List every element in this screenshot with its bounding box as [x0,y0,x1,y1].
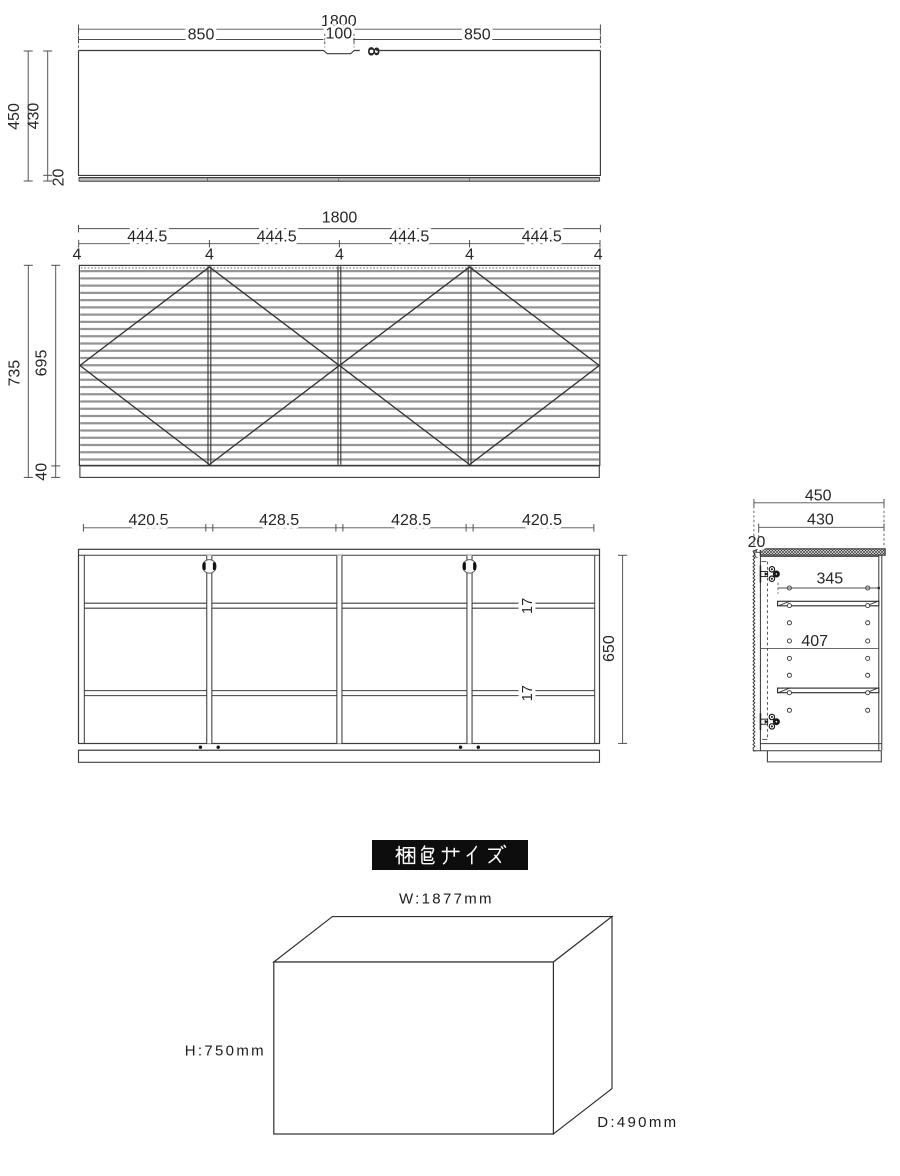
svg-text:430: 430 [26,103,43,130]
svg-text:428.5: 428.5 [259,512,299,529]
svg-text:4: 4 [594,247,603,264]
svg-text:428.5: 428.5 [391,512,431,529]
svg-text:850: 850 [464,26,491,43]
svg-text:H:750mm: H:750mm [185,1042,266,1059]
svg-text:444.5: 444.5 [389,229,429,246]
svg-text:444.5: 444.5 [522,229,562,246]
svg-text:40: 40 [33,463,50,481]
svg-text:695: 695 [33,350,50,377]
svg-text:407: 407 [801,633,828,650]
svg-text:420.5: 420.5 [128,512,168,529]
svg-text:20: 20 [748,534,766,551]
svg-text:20: 20 [51,169,68,187]
svg-text:17: 17 [520,685,536,701]
svg-text:450: 450 [805,487,832,504]
svg-text:4: 4 [73,247,82,264]
svg-text:4: 4 [465,247,474,264]
svg-text:W:1877mm: W:1877mm [399,891,494,908]
svg-text:650: 650 [601,635,618,662]
svg-text:430: 430 [807,512,834,529]
svg-text:1800: 1800 [322,209,358,226]
svg-text:D:490mm: D:490mm [597,1114,678,1131]
svg-text:420.5: 420.5 [522,512,562,529]
svg-text:8: 8 [364,47,383,56]
svg-text:4: 4 [335,247,344,264]
svg-text:444.5: 444.5 [127,229,167,246]
svg-text:450: 450 [6,103,23,130]
svg-text:735: 735 [6,360,23,387]
svg-text:850: 850 [188,26,215,43]
svg-text:345: 345 [816,571,843,588]
svg-text:4: 4 [205,247,214,264]
svg-text:17: 17 [520,598,536,614]
svg-text:100: 100 [325,25,352,42]
svg-text:444.5: 444.5 [257,229,297,246]
